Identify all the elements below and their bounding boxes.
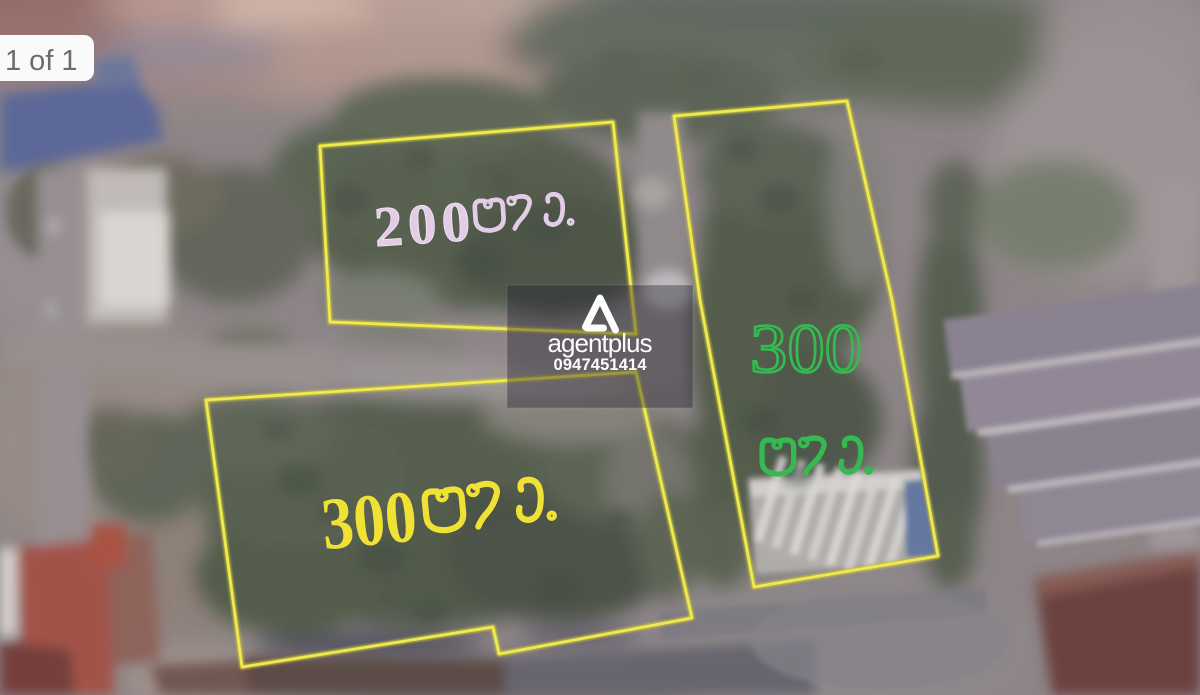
svg-text:0947451414: 0947451414 <box>554 356 648 374</box>
svg-text:300: 300 <box>318 475 420 566</box>
svg-text:200: 200 <box>372 190 472 259</box>
svg-text:1 of 1: 1 of 1 <box>5 45 78 77</box>
svg-text:agentplus: agentplus <box>548 328 653 358</box>
svg-text:300: 300 <box>750 311 862 388</box>
